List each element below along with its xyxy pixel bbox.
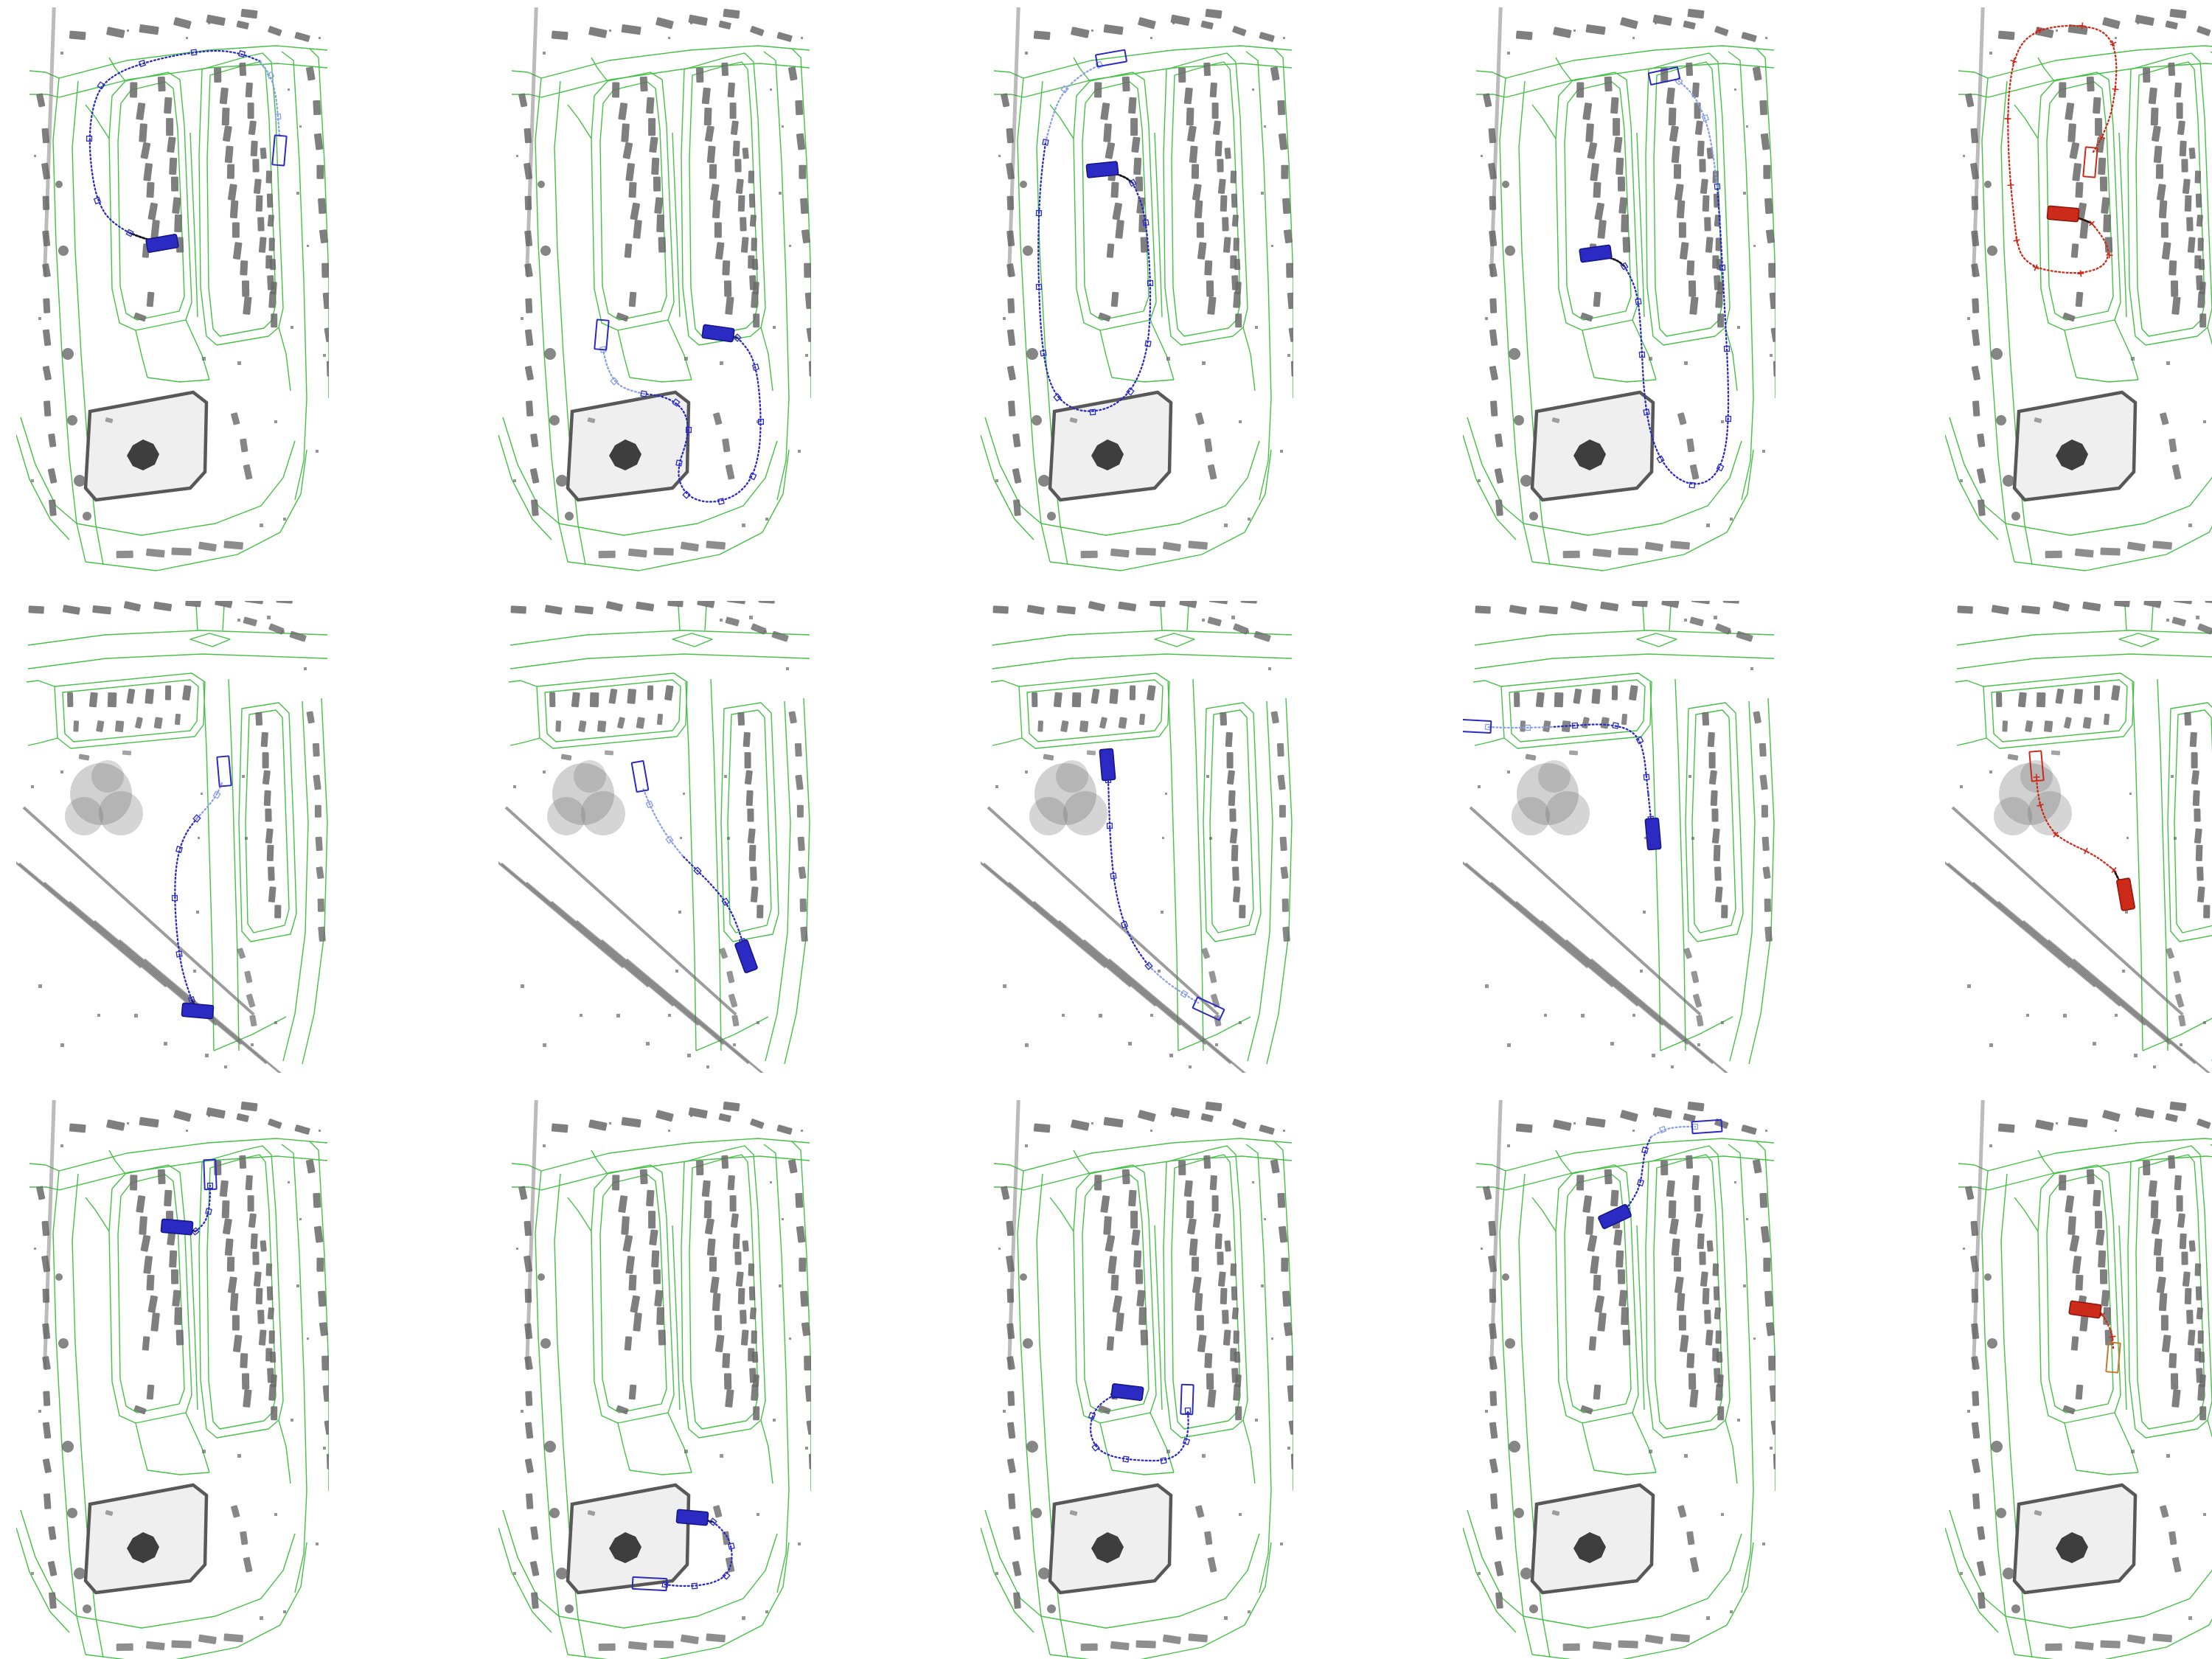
map-scene-A xyxy=(1945,7,2212,579)
map-scene-A xyxy=(1463,7,1775,579)
map-scene-B xyxy=(498,601,811,1073)
map-scene-A xyxy=(1945,1100,2212,1659)
map-cell-r2c3 xyxy=(981,601,1293,1073)
map-scene-A xyxy=(498,1100,811,1659)
map-scene-B xyxy=(1463,601,1775,1073)
map-scene-A xyxy=(16,7,329,579)
map-scene-A xyxy=(16,1100,329,1659)
map-scene-A xyxy=(498,7,811,579)
map-cell-r1c1 xyxy=(16,7,329,579)
trajectory-figure-grid xyxy=(0,0,2212,1659)
map-cell-r3c2 xyxy=(498,1100,811,1659)
map-cell-r3c3 xyxy=(981,1100,1293,1659)
map-cell-r2c2 xyxy=(498,601,811,1073)
map-cell-r3c5 xyxy=(1945,1100,2212,1659)
map-scene-A xyxy=(981,7,1293,579)
map-scene-B xyxy=(981,601,1293,1073)
map-cell-r3c4 xyxy=(1463,1100,1775,1659)
map-scene-B xyxy=(1945,601,2212,1073)
map-cell-r1c2 xyxy=(498,7,811,579)
map-cell-r3c1 xyxy=(16,1100,329,1659)
map-cell-r1c3 xyxy=(981,7,1293,579)
map-scene-A xyxy=(981,1100,1293,1659)
map-scene-A xyxy=(1463,1100,1775,1659)
map-scene-B xyxy=(16,601,329,1073)
map-cell-r2c4 xyxy=(1463,601,1775,1073)
map-cell-r2c5 xyxy=(1945,601,2212,1073)
map-cell-r2c1 xyxy=(16,601,329,1073)
map-cell-r1c5 xyxy=(1945,7,2212,579)
map-cell-r1c4 xyxy=(1463,7,1775,579)
